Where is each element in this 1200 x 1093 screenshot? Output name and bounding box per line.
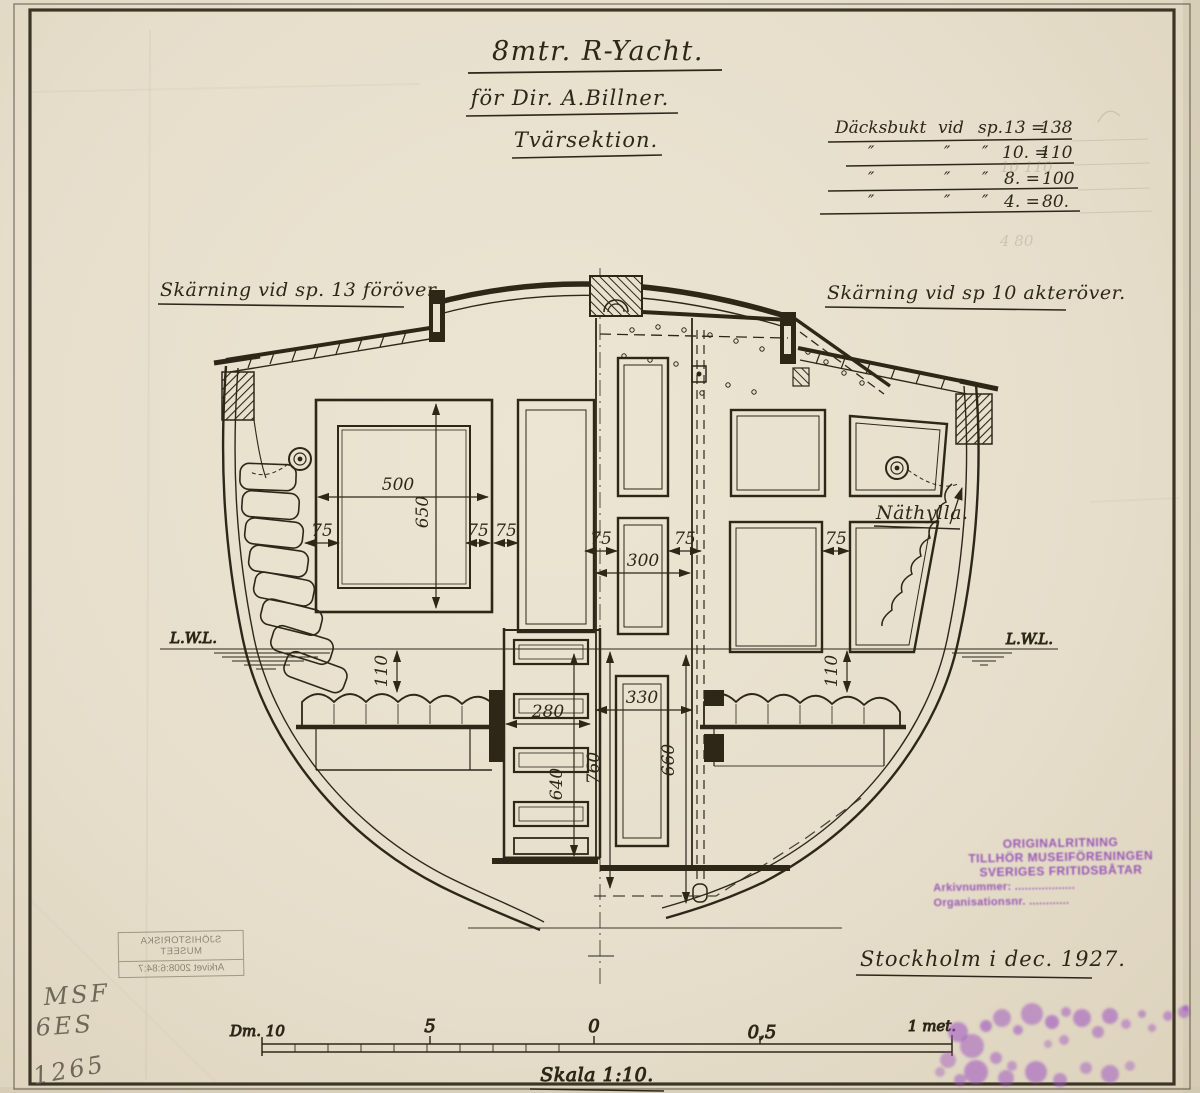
dim-110: 110 [822, 655, 842, 688]
scale-bar: Dm. 10 5 0 0,5 1 met. Skala 1:10. [229, 1016, 956, 1091]
nathylla-callout: Näthylla. [874, 488, 969, 529]
waterline: L.W.L. L.W.L. [160, 629, 1058, 669]
museum-stamp: ORIGINALRITNING TILLHÖR MUSEIFÖRENINGEN … [932, 834, 1189, 911]
table-cell: ″ [982, 169, 989, 189]
dim-75: 75 [495, 521, 517, 541]
hull-inner-left [235, 368, 544, 922]
waterline-label-left: L.W.L. [169, 629, 217, 647]
dim-650: 650 [413, 496, 433, 529]
dim-75: 75 [590, 529, 612, 549]
mast-partner-block [590, 276, 642, 316]
table-cell: ″ [868, 192, 875, 212]
lamp-target-left [289, 448, 311, 470]
dim-660: 660 [659, 744, 679, 777]
pencil-catalogue-notes: MSF 6ES 1265 [27, 976, 154, 1084]
table-cell: Däcksbukt [834, 118, 926, 138]
scale-caption: Skala 1:10. [540, 1064, 654, 1086]
table-cell: ″ [944, 192, 951, 212]
furniture-aft [700, 410, 958, 766]
section-label-forward: Skärning vid sp. 13 föröver [160, 279, 438, 301]
drawing-sheet: 8mtr. R-Yacht. för Dir. A.Billner. Tvärs… [0, 0, 1200, 1093]
purple-stamp-residue [935, 1003, 1190, 1087]
table-cell: ″ [982, 143, 989, 163]
hull-structure [214, 276, 998, 956]
signature-text: Stockholm i dec. 1927. [860, 947, 1126, 971]
waterline-label-right: L.W.L. [1005, 630, 1053, 648]
dim-75: 75 [825, 529, 847, 549]
drawing-subtitle-view: Tvärsektion. [514, 128, 658, 152]
dim-75: 75 [311, 521, 333, 541]
dim-330: 330 [626, 688, 659, 708]
dim-640: 640 [547, 768, 567, 801]
pencil-ghost-row: 10 110 [1000, 158, 1053, 176]
lamp-target-right [886, 457, 908, 479]
dim-280: 280 [531, 702, 565, 722]
table-cell: 138 [1040, 118, 1073, 138]
table-cell: 80. [1042, 192, 1069, 212]
drawing-subtitle-client: för Dir. A.Billner. [469, 86, 670, 110]
table-cell: vid [938, 118, 964, 138]
drawer-unit [504, 628, 600, 858]
deck-beam-hatch-left [222, 372, 254, 420]
dim-75: 75 [467, 521, 489, 541]
table-cell: ″ [868, 169, 875, 189]
archive-stamp-mirrored: SJÖHISTORISKA MUSEET Arkivet 2008:6:84:7 [118, 930, 245, 978]
signature-block: Stockholm i dec. 1927. [856, 947, 1126, 978]
scale-tick-05: 0,5 [748, 1022, 777, 1043]
archive-stamp-line: Arkivet 2008:6:84:7 [119, 959, 243, 977]
cushion-stack [240, 463, 350, 695]
archive-stamp-line: SJÖHISTORISKA MUSEET [119, 931, 243, 961]
table-cell: ″ [944, 143, 951, 163]
pencil-ghost-row: 4 80 [999, 232, 1034, 250]
pencil-note: MSF [43, 976, 149, 1011]
hull-inner-right [662, 386, 967, 908]
table-cell: ″ [868, 143, 875, 163]
settee-cushion-right [704, 694, 900, 726]
dim-75: 75 [674, 529, 696, 549]
pencil-note: 6ES [35, 1006, 151, 1042]
dim-300: 300 [627, 551, 660, 571]
table-cell: 4. = [1003, 192, 1040, 212]
section-label-aft: Skärning vid sp 10 akteröver. [827, 282, 1126, 304]
scale-tick-0: 0 [588, 1016, 599, 1037]
table-cell: ″ [982, 192, 989, 212]
deck-camber-table: Däcksbukt vid sp. 13 = 138 ″ ″ ″ 10. = 1… [820, 111, 1152, 250]
title-block: 8mtr. R-Yacht. för Dir. A.Billner. Tvärs… [466, 36, 722, 158]
dim-500: 500 [382, 475, 415, 495]
scale-tick-5: 5 [424, 1016, 435, 1037]
technical-drawing: 8mtr. R-Yacht. för Dir. A.Billner. Tvärs… [0, 0, 1200, 1093]
dimension-labels: 500 650 75 75 75 75 75 75 300 110 110 28… [311, 475, 847, 800]
table-cell: ″ [944, 169, 951, 189]
nathylla-label: Näthylla. [875, 502, 969, 524]
drawing-title: 8mtr. R-Yacht. [492, 36, 704, 67]
furniture-center [596, 318, 790, 902]
dim-110: 110 [372, 655, 392, 688]
deck-beam-hatch-right [956, 394, 992, 444]
furniture-forward [240, 400, 600, 861]
scale-left-label: Dm. 10 [229, 1022, 285, 1040]
dim-760: 760 [584, 752, 604, 785]
table-cell: sp. [978, 118, 1003, 138]
